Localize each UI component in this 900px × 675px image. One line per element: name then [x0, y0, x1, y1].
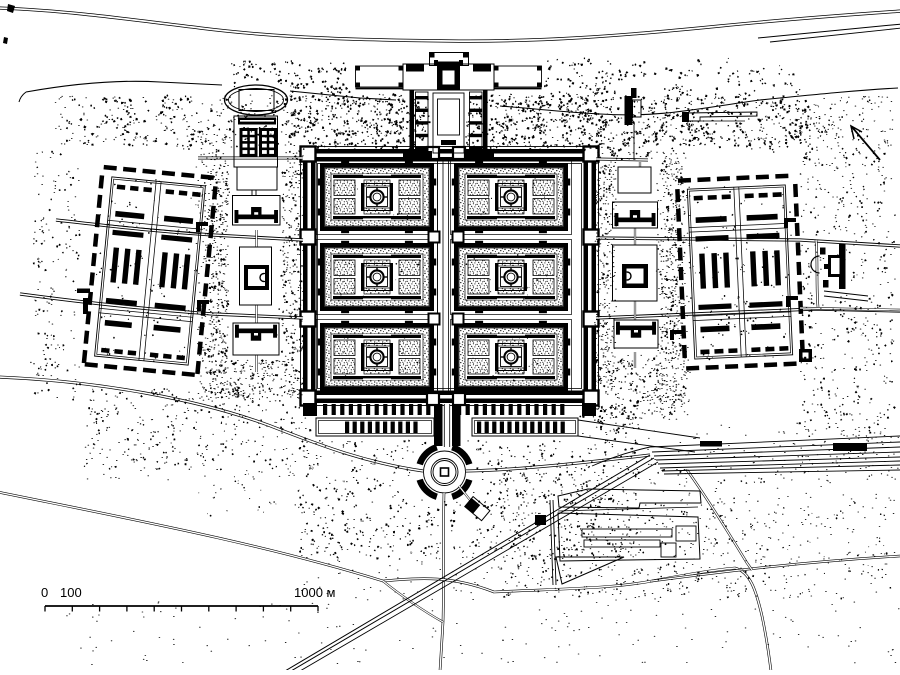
svg-text:1000 м: 1000 м — [294, 585, 336, 600]
svg-text:0: 0 — [41, 585, 48, 600]
svg-text:100: 100 — [60, 585, 82, 600]
